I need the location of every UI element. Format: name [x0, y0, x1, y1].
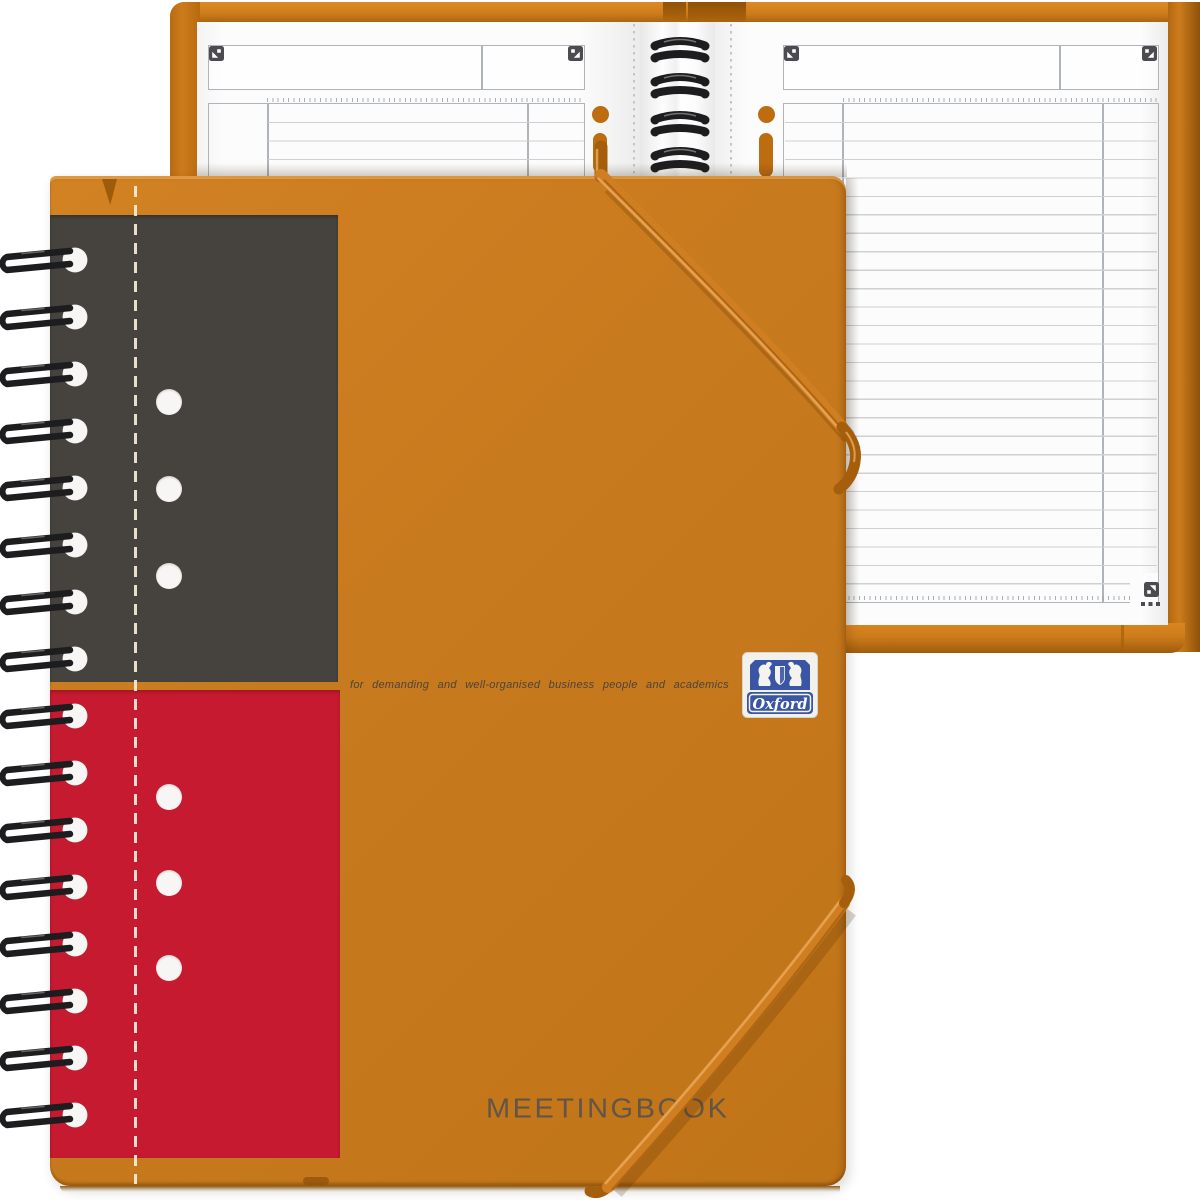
cover-notch	[303, 1177, 329, 1185]
scan-corner-icon	[1142, 46, 1157, 61]
dashed-fold-line	[134, 186, 137, 1184]
brand-name: Oxford	[753, 696, 808, 713]
scan-corner-icon	[784, 46, 799, 61]
perforation-line	[633, 24, 635, 178]
tagline: for demanding and well-organised busines…	[350, 679, 729, 692]
product-title: MEETINGBOOK	[486, 1093, 729, 1125]
product-photo: for demanding and well-organised busines…	[0, 0, 1200, 1200]
cast-shadow	[846, 178, 859, 625]
oxford-logo: Oxford	[742, 652, 818, 718]
left-page-header-box	[208, 45, 585, 90]
header-divider	[1059, 46, 1061, 89]
open-notebook-cover-left-edge	[170, 2, 200, 178]
cover-fold-line	[1121, 623, 1124, 653]
front-cover: for demanding and well-organised busines…	[50, 176, 846, 1186]
panel-punch-hole	[156, 955, 182, 981]
right-page-header-box	[783, 45, 1159, 90]
header-divider	[481, 46, 483, 89]
open-notebook-cover-bottom-edge	[845, 623, 1185, 653]
punch-hole	[592, 106, 609, 123]
scan-dots-icon	[1141, 602, 1160, 606]
scan-corner-icon	[568, 46, 583, 61]
spiral-spine	[640, 22, 715, 180]
panel-punch-hole	[156, 563, 182, 589]
scan-corner-icon	[1144, 582, 1159, 597]
red-panel	[50, 690, 340, 1158]
panel-punch-hole	[156, 870, 182, 896]
panel-punch-hole	[156, 784, 182, 810]
page-stack-edge	[60, 1186, 840, 1192]
cover-fold-tab	[663, 2, 686, 23]
panel-punch-hole	[156, 476, 182, 502]
ruler-ticks	[267, 98, 583, 102]
gray-panel	[50, 215, 338, 682]
cast-shadow	[197, 163, 847, 177]
panel-punch-hole	[156, 389, 182, 415]
ruler-ticks	[843, 98, 1157, 102]
cover-notch	[102, 179, 117, 205]
open-notebook-cover-right-edge	[1168, 2, 1200, 652]
scan-corner-icon	[209, 46, 224, 61]
perforation-line	[730, 24, 732, 178]
punch-hole	[758, 106, 775, 123]
